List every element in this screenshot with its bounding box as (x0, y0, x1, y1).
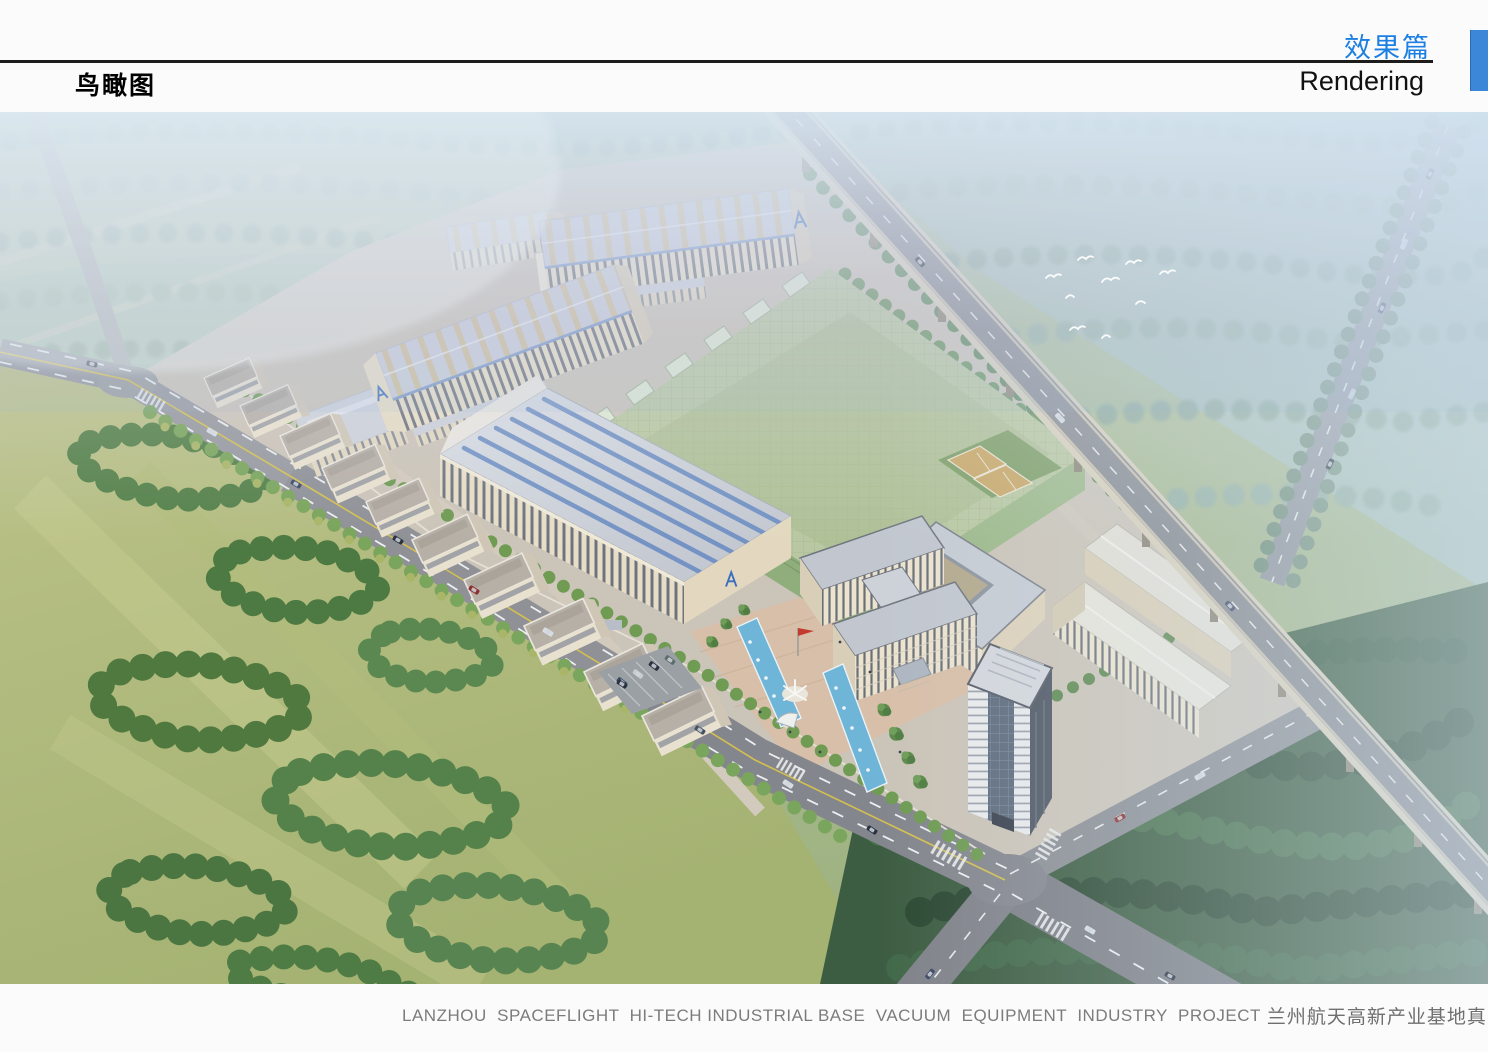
page-title: 鸟瞰图 (75, 66, 156, 102)
footer: LANZHOU SPACEFLIGHT HI-TECH INDUSTRIAL B… (0, 984, 1488, 1052)
section-title-en: Rendering (1299, 66, 1424, 97)
presentation-page: 效果篇 Rendering 鸟瞰图 (0, 0, 1488, 1052)
project-caption-en: LANZHOU SPACEFLIGHT HI-TECH INDUSTRIAL B… (402, 1006, 1261, 1026)
header-rule (0, 60, 1433, 63)
project-caption-cn: 兰州航天高新产业基地真空装备产业园项目 (1267, 1002, 1488, 1029)
project-caption: LANZHOU SPACEFLIGHT HI-TECH INDUSTRIAL B… (402, 1002, 1488, 1029)
section-tab-marker (1470, 30, 1488, 91)
aerial-rendering-image (0, 112, 1488, 984)
